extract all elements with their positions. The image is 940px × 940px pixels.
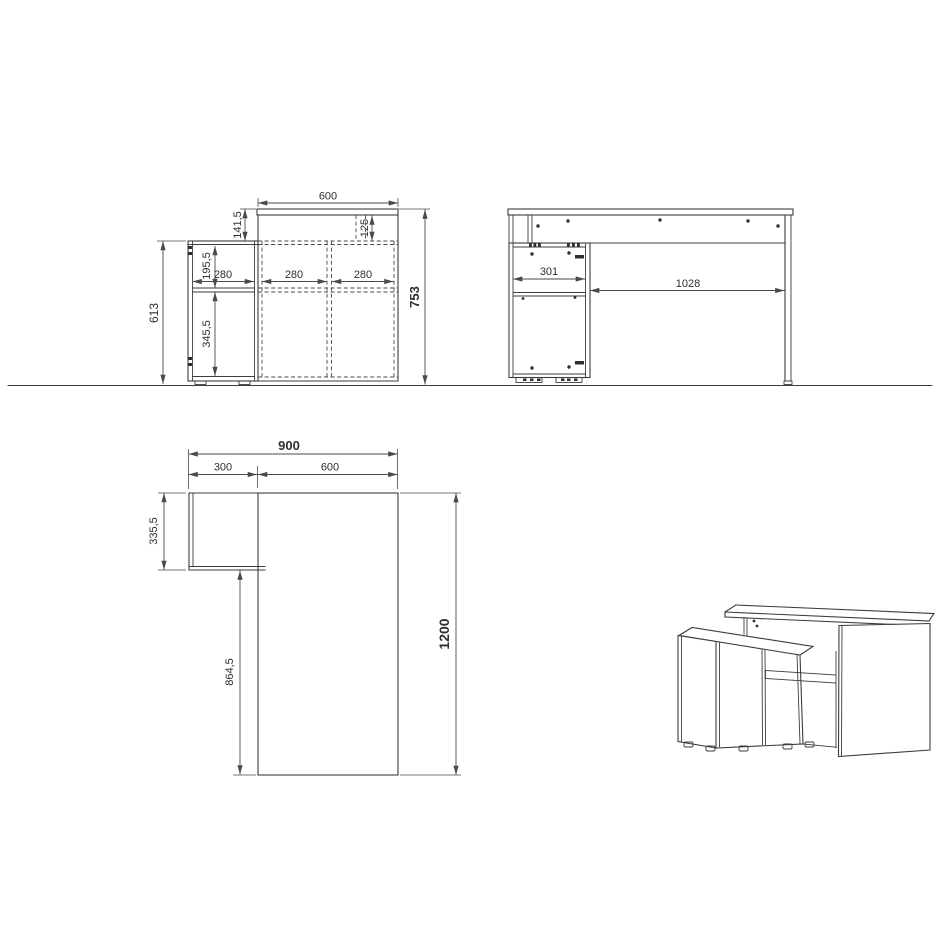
- plan-dimensions: 900 300 600 335,5 864,5 1200: [148, 438, 461, 775]
- dim-plan-total-depth: 1200: [436, 618, 452, 649]
- dim-front-top-drop: 141,5: [232, 211, 244, 239]
- hinge-mark: [188, 357, 192, 360]
- plan-outline: [189, 493, 398, 775]
- connector-mark: [575, 361, 584, 365]
- perspective-view: [678, 605, 934, 757]
- front-desk-top: [257, 209, 398, 215]
- technical-drawing: 600 141,5 125 195,5 280 280 280 613 345,…: [0, 0, 940, 940]
- side-view: 301 1028: [508, 209, 793, 385]
- hinge-mark: [188, 246, 192, 249]
- dim-plan-total-width: 900: [278, 438, 300, 453]
- front-hidden-edges: [258, 215, 398, 377]
- side-back-rail: [513, 215, 785, 243]
- plan-view: 900 300 600 335,5 864,5 1200: [148, 438, 461, 775]
- hinge-mark: [188, 363, 192, 366]
- front-dimensions: 600 141,5 125 195,5 280 280 280 613 345,…: [147, 191, 430, 385]
- dim-front-bay-2: 280: [285, 269, 303, 281]
- side-desk-top: [508, 209, 793, 215]
- iso-top-support: [744, 618, 758, 636]
- cam-dot: [530, 252, 533, 255]
- cam-dot: [567, 365, 570, 368]
- dim-front-upper-section: 195,5: [201, 252, 213, 280]
- dim-front-top-width: 600: [319, 191, 337, 203]
- dim-front-cabinet-height: 613: [147, 303, 161, 323]
- screw-dot: [746, 219, 749, 222]
- drawing-sheet: 600 141,5 125 195,5 280 280 280 613 345,…: [0, 0, 940, 940]
- screw-dot: [566, 219, 569, 222]
- iso-desk-top: [725, 605, 934, 626]
- front-cabinet: [188, 241, 258, 385]
- iso-open-door: [678, 636, 716, 749]
- dim-front-top-inset: 125: [359, 219, 371, 237]
- dim-front-lower-section: 345,5: [201, 320, 213, 348]
- hinge-mark: [188, 252, 192, 255]
- plan-desk-top: [258, 493, 398, 775]
- dim-front-bay-3: 280: [354, 269, 372, 281]
- cam-dot: [567, 251, 570, 254]
- dim-plan-cabinet-depth: 335,5: [148, 517, 160, 545]
- dim-side-open-depth: 1028: [676, 278, 700, 290]
- screw-dot: [658, 218, 661, 221]
- dim-front-total-height: 753: [407, 286, 422, 308]
- side-cabinet: [509, 215, 590, 383]
- dim-plan-cabinet-width: 300: [214, 462, 232, 474]
- iso-side-panel: [839, 624, 931, 757]
- side-dimensions: 301 1028: [513, 266, 785, 291]
- dim-side-cabinet-depth: 301: [540, 266, 558, 278]
- cam-dot: [522, 297, 525, 300]
- side-panel: [784, 215, 792, 385]
- cam-dot: [530, 366, 533, 369]
- screw-dot: [776, 224, 779, 227]
- connector-mark: [575, 255, 584, 259]
- dim-front-bay-1: 280: [214, 269, 232, 281]
- dim-plan-desk-width: 600: [321, 462, 339, 474]
- cam-dot: [574, 296, 577, 299]
- dim-plan-lower-depth: 864,5: [224, 658, 236, 686]
- screw-dot: [536, 224, 539, 227]
- front-view: 600 141,5 125 195,5 280 280 280 613 345,…: [147, 191, 430, 385]
